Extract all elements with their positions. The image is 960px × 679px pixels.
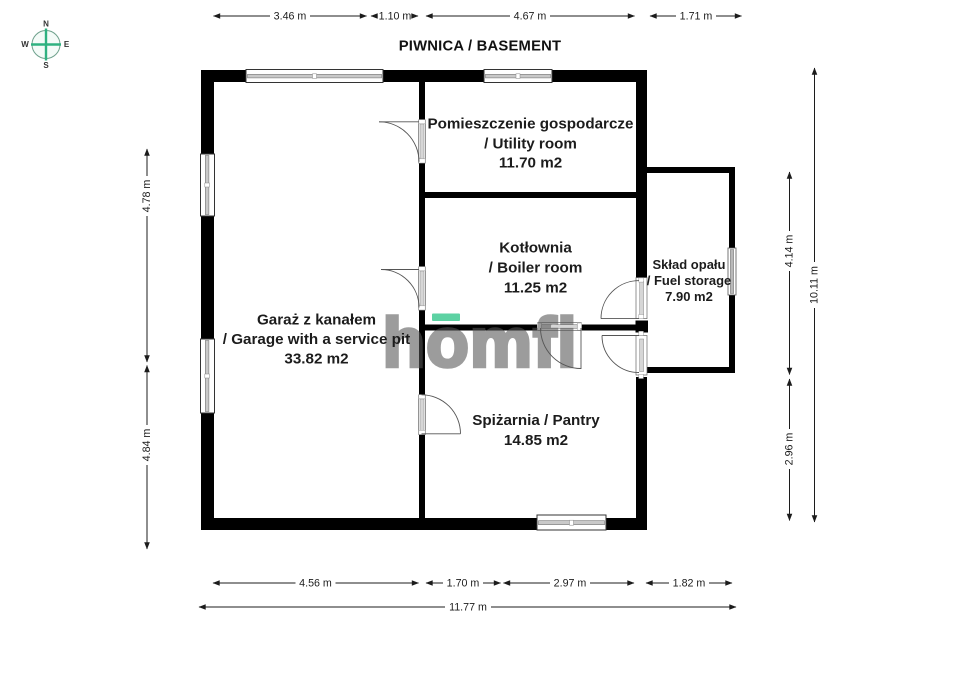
- svg-text:1.70 m: 1.70 m: [447, 578, 480, 590]
- svg-text:11.25 m2: 11.25 m2: [504, 280, 567, 297]
- svg-text:PIWNICA / BASEMENT: PIWNICA / BASEMENT: [399, 39, 562, 55]
- svg-text:11.70 m2: 11.70 m2: [499, 155, 562, 172]
- svg-text:Skład opału: Skład opału: [653, 257, 726, 272]
- svg-text:N: N: [43, 20, 49, 29]
- svg-text:Kotłownia: Kotłownia: [499, 240, 572, 257]
- svg-text:7.90 m2: 7.90 m2: [665, 289, 713, 304]
- svg-text:33.82 m2: 33.82 m2: [284, 351, 348, 368]
- svg-text:4.78 m: 4.78 m: [141, 180, 153, 213]
- svg-text:1.10 m: 1.10 m: [379, 11, 412, 23]
- svg-text:14.85 m2: 14.85 m2: [504, 432, 568, 449]
- svg-text:/ Utility room: / Utility room: [484, 135, 577, 152]
- svg-text:1.82 m: 1.82 m: [673, 578, 706, 590]
- svg-text:Spiżarnia / Pantry: Spiżarnia / Pantry: [472, 412, 600, 429]
- svg-text:10.11 m: 10.11 m: [809, 266, 821, 304]
- svg-text:homfi: homfi: [383, 304, 578, 382]
- svg-text:4.56 m: 4.56 m: [299, 578, 332, 590]
- svg-text:W: W: [21, 40, 29, 49]
- svg-text:/ Fuel storage: / Fuel storage: [647, 273, 732, 288]
- svg-text:11.77 m: 11.77 m: [449, 602, 487, 614]
- svg-text:1.71 m: 1.71 m: [680, 11, 713, 23]
- svg-text:4.14 m: 4.14 m: [784, 235, 796, 268]
- svg-text:3.46 m: 3.46 m: [274, 11, 307, 23]
- svg-text:Pomieszczenie gospodarcze: Pomieszczenie gospodarcze: [428, 116, 634, 133]
- svg-text:4.84 m: 4.84 m: [141, 429, 153, 462]
- svg-text:Garaż z kanałem: Garaż z kanałem: [257, 312, 376, 329]
- svg-text:2.96 m: 2.96 m: [784, 433, 796, 466]
- svg-text:4.67 m: 4.67 m: [514, 11, 547, 23]
- svg-text:S: S: [43, 61, 49, 70]
- svg-text:E: E: [64, 40, 70, 49]
- svg-text:/ Garage with a service pit: / Garage with a service pit: [223, 331, 410, 348]
- svg-text:/ Boiler room: / Boiler room: [489, 260, 583, 277]
- svg-text:2.97 m: 2.97 m: [554, 578, 587, 590]
